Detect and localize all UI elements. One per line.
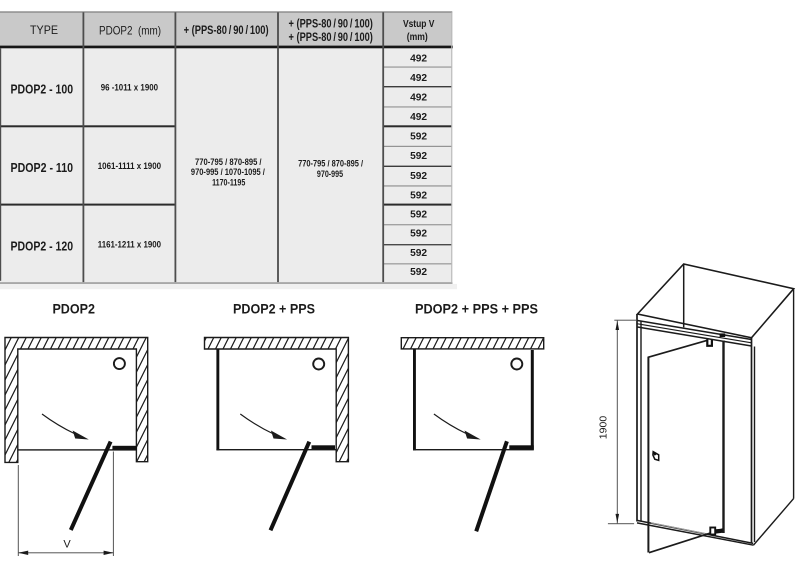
svg-text:+ (PPS-80 / 90 / 100): + (PPS-80 / 90 / 100) [289, 32, 373, 44]
svg-text:592: 592 [410, 210, 427, 221]
svg-text:TYPE: TYPE [30, 23, 58, 37]
svg-text:+ (PPS-80 / 90 / 100): + (PPS-80 / 90 / 100) [184, 25, 269, 37]
svg-text:1161-1211 x 1900: 1161-1211 x 1900 [98, 239, 161, 250]
svg-text:PDOP2 - 120: PDOP2 - 120 [11, 239, 74, 253]
svg-text:Vstup V: Vstup V [403, 18, 435, 30]
svg-text:492: 492 [410, 93, 427, 104]
svg-text:PDOP2 + PPS: PDOP2 + PPS [233, 301, 315, 317]
svg-text:770-795 / 870-895 /: 770-795 / 870-895 / [298, 158, 363, 169]
svg-text:+ (PPS-80 / 90 / 100): + (PPS-80 / 90 / 100) [289, 18, 373, 30]
svg-text:1061-1111 x 1900: 1061-1111 x 1900 [98, 161, 161, 172]
svg-text:492: 492 [410, 112, 427, 123]
svg-text:1900: 1900 [598, 416, 610, 440]
svg-text:770-795 / 870-895 /: 770-795 / 870-895 / [195, 157, 262, 168]
svg-text:PDOP2 - 100: PDOP2 - 100 [11, 83, 74, 97]
svg-text:492: 492 [410, 73, 427, 84]
svg-text:592: 592 [410, 151, 427, 162]
svg-text:PDOP2 - 110: PDOP2 - 110 [11, 161, 74, 175]
svg-text:592: 592 [410, 267, 427, 278]
svg-text:V: V [63, 538, 71, 550]
svg-text:1170-1195: 1170-1195 [212, 177, 246, 188]
svg-text:592: 592 [410, 229, 427, 240]
svg-text:592: 592 [410, 171, 427, 182]
svg-text:592: 592 [410, 190, 427, 201]
svg-text:592: 592 [410, 132, 427, 143]
svg-text:(mm): (mm) [407, 31, 428, 43]
svg-text:96 -1011 x 1900: 96 -1011 x 1900 [101, 82, 158, 93]
svg-text:PDOP2: PDOP2 [52, 301, 95, 317]
svg-text:PDOP2 (mm): PDOP2 (mm) [99, 23, 161, 37]
svg-text:592: 592 [410, 248, 427, 259]
svg-text:492: 492 [410, 53, 427, 64]
svg-text:970-995: 970-995 [317, 169, 344, 180]
svg-text:PDOP2 + PPS + PPS: PDOP2 + PPS + PPS [415, 301, 538, 317]
